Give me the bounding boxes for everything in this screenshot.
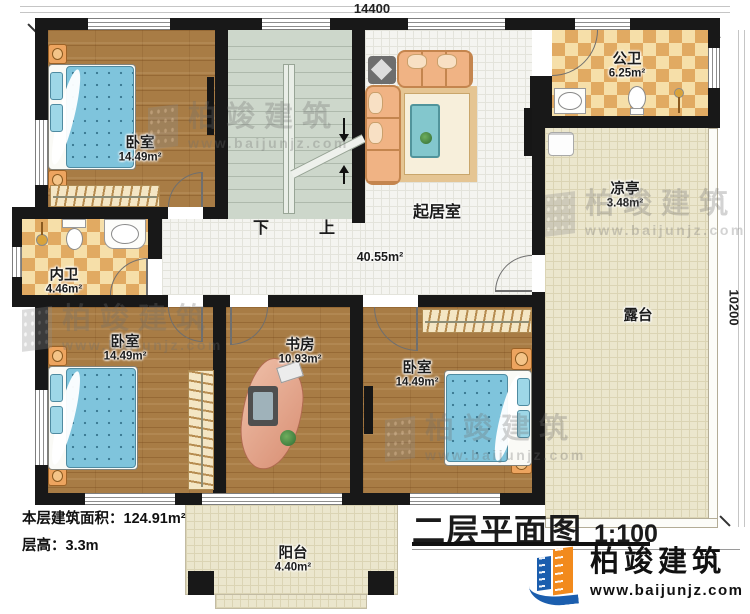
wall-segment	[175, 493, 202, 505]
toilet-tank	[62, 219, 86, 228]
room-name: 起居室	[413, 204, 461, 222]
wall-segment	[170, 18, 262, 30]
pillow	[517, 378, 530, 406]
wall-segment	[530, 18, 552, 30]
sofa-pillow	[368, 122, 383, 144]
wall-segment	[35, 18, 88, 30]
shower-head-icon	[36, 234, 48, 246]
window	[88, 18, 170, 30]
door-leaf	[201, 172, 203, 207]
sofa-pillow	[407, 54, 427, 69]
watermark-texts: 柏竣建筑 www.baijunjz.com	[62, 305, 223, 353]
table-decor	[420, 132, 432, 144]
room-area: 6.25m²	[609, 68, 645, 81]
room-label-terrace: 露台	[624, 308, 653, 324]
room-name: 内卫	[50, 267, 79, 283]
wall-segment	[330, 18, 408, 30]
room-area: 14.49m²	[396, 377, 439, 390]
balcony-pier	[188, 571, 214, 595]
stair-arrow-head-up	[339, 160, 349, 173]
room-name: 书房	[286, 337, 315, 353]
brand-logo: 柏竣建筑 www.baijunjz.com	[532, 548, 743, 606]
watermark-texts: 柏竣建筑 www.baijunjz.com	[585, 190, 746, 238]
room-name: 公卫	[613, 51, 642, 67]
room-name: 阳台	[279, 545, 308, 561]
window	[262, 18, 330, 30]
window	[575, 18, 630, 30]
watermark: 柏竣建筑 www.baijunjz.com	[545, 190, 746, 238]
wall-segment	[12, 207, 22, 247]
wardrobe	[188, 370, 214, 490]
watermark-url: www.baijunjz.com	[585, 222, 746, 238]
balcony-pier	[368, 571, 394, 595]
room-area: 40.55m²	[357, 250, 404, 264]
toilet-icon	[66, 228, 83, 250]
watermark-brand: 柏竣建筑	[62, 303, 214, 335]
door-leaf	[230, 307, 232, 345]
pillow	[50, 72, 63, 100]
sofa-pillow	[437, 54, 457, 69]
watermark-building-icon	[385, 416, 415, 462]
room-area-living: 40.55m²	[357, 250, 404, 264]
shower-rod	[41, 222, 43, 235]
dimension-width-label: 14400	[0, 1, 744, 16]
watermark-url: www.baijunjz.com	[62, 337, 223, 353]
watermark-building-icon	[148, 104, 178, 150]
window	[85, 493, 175, 505]
watermark-brand: 柏竣建筑	[585, 188, 737, 220]
wall-segment	[148, 219, 162, 259]
watermark-url: www.baijunjz.com	[188, 135, 349, 151]
wardrobe	[50, 185, 160, 207]
watermark-url: www.baijunjz.com	[425, 447, 586, 463]
watermark-texts: 柏竣建筑 www.baijunjz.com	[188, 103, 349, 151]
monitor-screen	[253, 392, 273, 420]
dimension-line	[744, 30, 745, 527]
floor-balcony-front	[215, 595, 367, 609]
brand-url: www.baijunjz.com	[590, 582, 743, 599]
door-leaf	[495, 290, 532, 292]
sink-icon	[111, 224, 139, 244]
coffee-table	[410, 104, 440, 158]
toilet-base	[630, 108, 644, 115]
wardrobe	[422, 309, 532, 333]
window	[708, 48, 720, 88]
wall-segment	[203, 207, 228, 219]
window	[12, 247, 22, 277]
wall-segment	[350, 307, 363, 493]
room-label-public-bath: 公卫 6.25m²	[609, 51, 645, 80]
watermark-texts: 柏竣建筑 www.baijunjz.com	[425, 415, 586, 463]
window	[35, 120, 48, 185]
nightstand	[48, 44, 67, 64]
tv-wall-unit	[524, 108, 532, 156]
wall-segment	[532, 292, 545, 505]
watermark: 柏竣建筑 www.baijunjz.com	[385, 415, 586, 463]
room-name: 卧室	[403, 360, 432, 376]
wall-segment	[530, 116, 720, 128]
wall-segment	[342, 493, 410, 505]
stair-up-label: 上	[319, 214, 335, 238]
logo-orange-tower	[553, 547, 573, 596]
plant-icon	[280, 430, 296, 446]
watermark-brand: 柏竣建筑	[425, 413, 577, 445]
sink-icon	[558, 92, 582, 110]
watermark-brand: 柏竣建筑	[188, 101, 340, 133]
room-name: 露台	[624, 308, 653, 324]
room-label-study: 书房 10.93m²	[279, 337, 322, 366]
watermark-building-icon	[22, 306, 52, 352]
wall-segment	[708, 88, 720, 128]
door-leaf	[416, 307, 418, 351]
window	[408, 18, 505, 30]
room-area: 4.40m²	[275, 562, 311, 575]
stair-down-label: 下	[253, 214, 269, 238]
wall-segment	[352, 30, 365, 223]
pillow	[50, 104, 63, 132]
wall-segment	[35, 30, 48, 120]
tv-wall-unit	[364, 386, 373, 434]
brand-building-icon	[532, 548, 582, 606]
floor-height-stat: 层高：3.3m	[22, 534, 99, 555]
wall-segment	[268, 295, 363, 307]
pillow	[50, 374, 63, 402]
sofa-pillow	[368, 92, 383, 114]
pillow	[50, 406, 63, 434]
room-label-balcony: 阳台 4.40m²	[275, 545, 311, 574]
room-area: 14.49m²	[119, 152, 162, 165]
toilet-icon	[628, 86, 646, 110]
brand-name: 柏竣建筑	[590, 548, 743, 577]
wall-segment	[708, 18, 720, 48]
wall-segment	[532, 128, 545, 255]
wall-segment	[418, 295, 545, 307]
room-label-inner-bath: 内卫 4.46m²	[46, 267, 82, 296]
window	[35, 390, 48, 465]
room-area: 10.93m²	[279, 354, 322, 367]
dimension-line	[738, 30, 739, 527]
shower-rod	[678, 97, 680, 113]
watermark: 柏竣建筑 www.baijunjz.com	[148, 103, 349, 151]
dimension-height-label: 10200	[727, 289, 742, 325]
wall-segment	[630, 18, 720, 30]
watermark-building-icon	[545, 191, 575, 237]
room-area: 4.46m²	[46, 284, 82, 297]
wall-segment	[35, 207, 168, 219]
balcony-sliding-door	[202, 493, 342, 505]
room-label-living: 起居室	[413, 204, 461, 222]
wall-segment	[35, 493, 85, 505]
watermark: 柏竣建筑 www.baijunjz.com	[22, 305, 223, 353]
floor-area-stat: 本层建筑面积：124.91m²	[22, 507, 186, 528]
logo-blue-tower	[537, 556, 551, 591]
brand-texts: 柏竣建筑 www.baijunjz.com	[590, 548, 743, 599]
water-heater-icon	[548, 132, 574, 156]
room-label-bedroom-bm: 卧室 14.49m²	[396, 360, 439, 389]
door-leaf	[146, 258, 148, 295]
dimension-tick	[719, 515, 730, 526]
floor-plan-canvas: 14400 10200	[0, 0, 750, 614]
nightstand	[511, 348, 532, 370]
